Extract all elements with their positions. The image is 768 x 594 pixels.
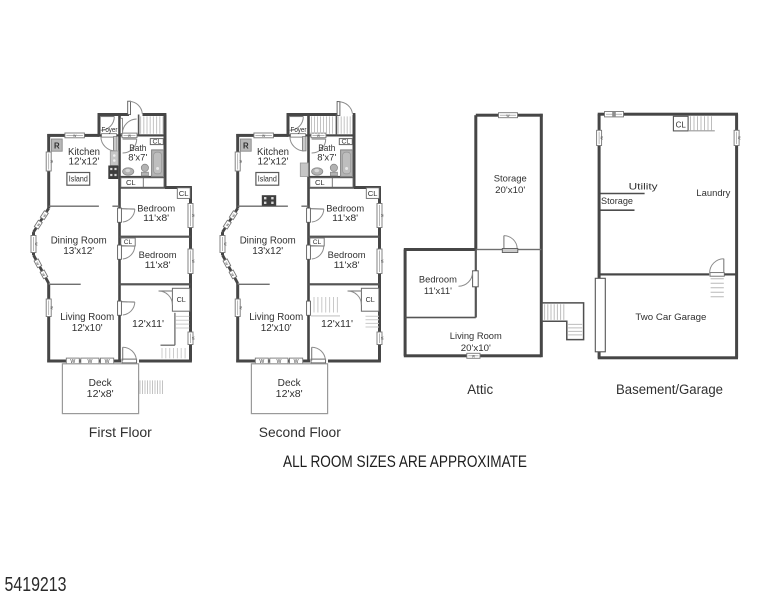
svg-text:CL: CL bbox=[313, 239, 322, 246]
svg-text:8'x7': 8'x7' bbox=[317, 152, 336, 162]
svg-text:R: R bbox=[243, 142, 249, 151]
svg-text:CL: CL bbox=[124, 239, 133, 246]
svg-text:20'x10': 20'x10' bbox=[495, 185, 525, 196]
svg-text:Island: Island bbox=[258, 175, 277, 184]
svg-text:CL: CL bbox=[315, 178, 325, 187]
svg-text:R: R bbox=[54, 142, 60, 151]
svg-text:CL: CL bbox=[152, 138, 161, 145]
svg-text:Second Floor: Second Floor bbox=[259, 424, 341, 440]
svg-text:First Floor: First Floor bbox=[89, 424, 152, 440]
svg-text:12'x11': 12'x11' bbox=[321, 319, 353, 330]
svg-text:CL: CL bbox=[126, 178, 136, 187]
svg-text:5419213: 5419213 bbox=[5, 574, 67, 594]
svg-text:Basement/Garage: Basement/Garage bbox=[616, 382, 723, 397]
svg-text:12'x12': 12'x12' bbox=[258, 156, 289, 167]
svg-text:12'x8': 12'x8' bbox=[276, 389, 303, 400]
svg-text:11'x8': 11'x8' bbox=[334, 259, 360, 270]
svg-text:11'x8': 11'x8' bbox=[332, 212, 358, 223]
svg-text:13'x12': 13'x12' bbox=[63, 246, 94, 257]
svg-text:8'x7': 8'x7' bbox=[128, 152, 147, 162]
svg-text:CL: CL bbox=[366, 295, 375, 304]
svg-text:12'x8': 12'x8' bbox=[87, 389, 114, 400]
svg-text:CL: CL bbox=[179, 189, 189, 198]
svg-text:Two Car Garage: Two Car Garage bbox=[635, 312, 706, 323]
svg-text:Deck: Deck bbox=[89, 378, 113, 389]
svg-text:Living Room: Living Room bbox=[450, 331, 502, 342]
svg-text:12'x10': 12'x10' bbox=[72, 323, 103, 334]
svg-text:11'x8': 11'x8' bbox=[143, 212, 169, 223]
svg-text:Dining Room: Dining Room bbox=[51, 236, 107, 247]
svg-text:Utility: Utility bbox=[629, 181, 658, 192]
svg-text:Foyer: Foyer bbox=[291, 125, 307, 134]
svg-text:12'x12': 12'x12' bbox=[69, 156, 100, 167]
svg-text:Bedroom: Bedroom bbox=[419, 275, 457, 286]
svg-text:Island: Island bbox=[69, 175, 88, 184]
svg-text:11'x8': 11'x8' bbox=[145, 259, 171, 270]
svg-text:Storage: Storage bbox=[601, 196, 633, 207]
svg-text:Dining Room: Dining Room bbox=[240, 236, 296, 247]
svg-text:Storage: Storage bbox=[494, 174, 527, 185]
svg-text:12'x10': 12'x10' bbox=[261, 323, 292, 334]
svg-text:12'x11': 12'x11' bbox=[132, 319, 164, 330]
svg-text:CL: CL bbox=[177, 295, 186, 304]
svg-text:11'x11': 11'x11' bbox=[424, 286, 452, 297]
svg-text:CL: CL bbox=[676, 120, 687, 129]
svg-text:Foyer: Foyer bbox=[102, 125, 118, 134]
svg-text:Living Room: Living Room bbox=[249, 312, 303, 323]
svg-text:Laundry: Laundry bbox=[696, 188, 730, 199]
svg-text:CL: CL bbox=[368, 189, 378, 198]
svg-text:13'x12': 13'x12' bbox=[252, 246, 283, 257]
svg-text:Attic: Attic bbox=[467, 382, 493, 397]
svg-text:ALL ROOM SIZES ARE APPROXIMATE: ALL ROOM SIZES ARE APPROXIMATE bbox=[283, 452, 527, 471]
svg-text:Living Room: Living Room bbox=[60, 312, 114, 323]
svg-text:20'x10': 20'x10' bbox=[461, 343, 491, 354]
svg-text:CL: CL bbox=[341, 138, 350, 145]
svg-text:Deck: Deck bbox=[278, 378, 302, 389]
